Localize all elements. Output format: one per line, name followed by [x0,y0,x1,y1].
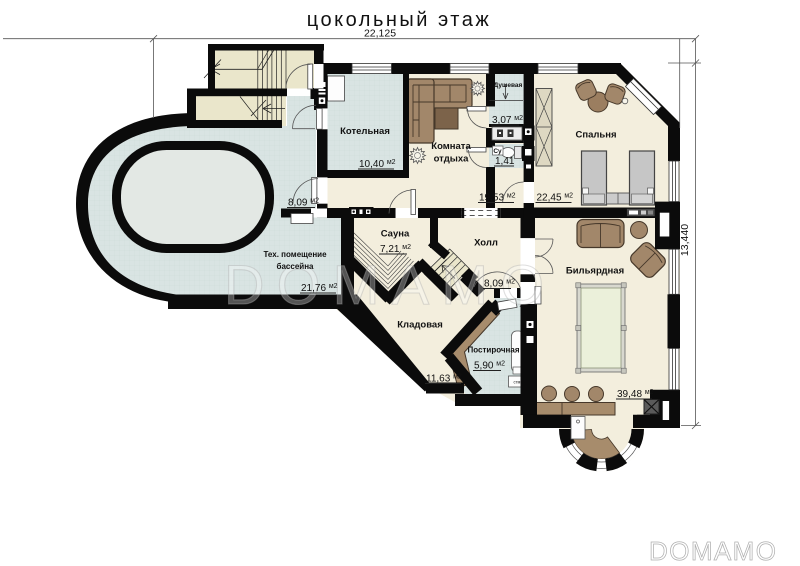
svg-text:22,125: 22,125 [364,28,396,40]
svg-text:цокольный этаж: цокольный этаж [307,9,491,31]
svg-text:Постирочная: Постирочная [468,346,520,355]
svg-text:стм: стм [514,380,521,385]
svg-text:Котельная: Котельная [340,126,390,137]
svg-text:13,440: 13,440 [679,224,691,256]
svg-text:Холл: Холл [474,238,498,249]
svg-text:Сауна: Сауна [381,229,410,240]
svg-text:Спальня: Спальня [575,130,616,141]
svg-text:Бильярдная: Бильярдная [566,266,624,277]
svg-text:отдыха: отдыха [434,154,470,165]
svg-text:Комната: Комната [431,141,471,152]
svg-text:Душевая: Душевая [494,82,523,89]
svg-text:Тех. помещение: Тех. помещение [263,250,327,259]
svg-text:DOMAMO: DOMAMO [649,536,783,566]
svg-text:1,41: 1,41 [495,156,515,167]
svg-text:бассейна: бассейна [277,262,314,271]
svg-text:Кладовая: Кладовая [397,320,443,331]
svg-text:Су: Су [493,148,502,155]
